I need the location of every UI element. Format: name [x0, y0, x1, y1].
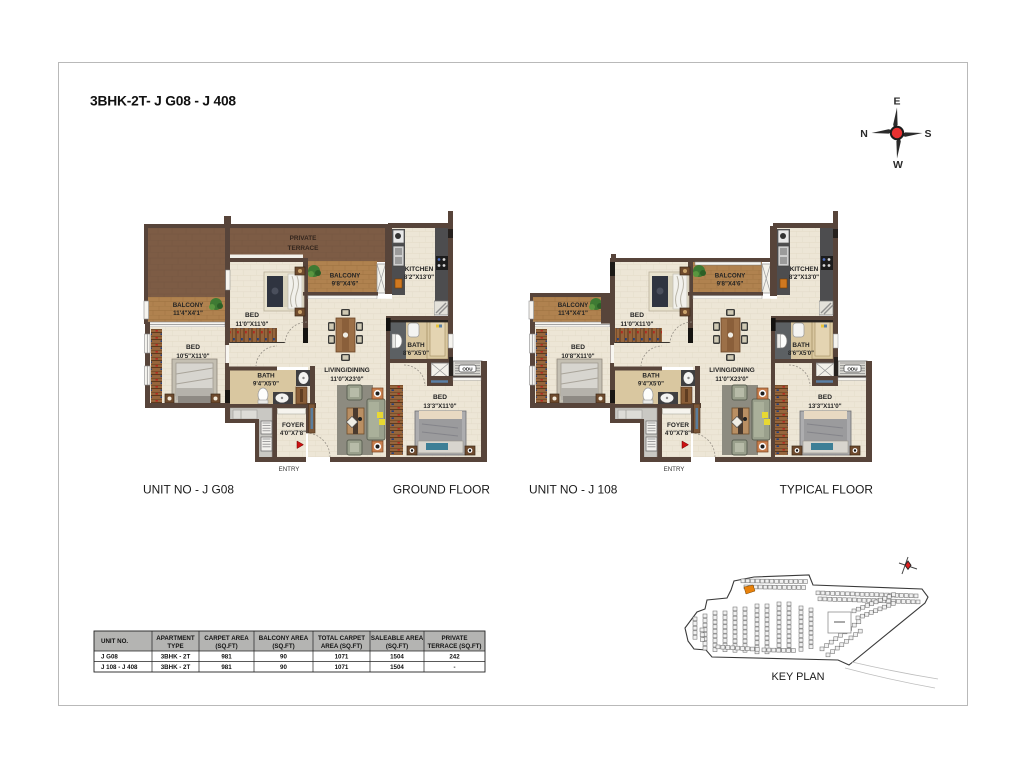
svg-text:(SQ.FT): (SQ.FT) — [386, 643, 408, 650]
svg-text:N: N — [860, 128, 868, 140]
svg-text:KEY PLAN: KEY PLAN — [771, 671, 824, 683]
svg-text:BALCONY: BALCONY — [173, 302, 204, 309]
svg-text:BALCONY: BALCONY — [330, 273, 361, 280]
svg-text:9'8"X4'6": 9'8"X4'6" — [332, 281, 359, 288]
svg-text:SALEABLE AREA: SALEABLE AREA — [371, 635, 424, 642]
svg-text:BED: BED — [245, 312, 259, 319]
svg-text:981: 981 — [221, 664, 232, 671]
svg-text:8'6"X5'0": 8'6"X5'0" — [788, 351, 814, 357]
svg-text:3BHK - 2T: 3BHK - 2T — [161, 664, 191, 671]
svg-text:11'4"X4'1": 11'4"X4'1" — [558, 310, 588, 317]
svg-text:LIVING/DINING: LIVING/DINING — [324, 367, 369, 374]
svg-text:BED: BED — [186, 344, 200, 351]
svg-text:4'0"X7'8": 4'0"X7'8" — [665, 431, 691, 437]
svg-text:(SQ.FT): (SQ.FT) — [272, 643, 294, 650]
svg-text:9'4"X5'0": 9'4"X5'0" — [253, 382, 279, 388]
svg-text:ODU: ODU — [462, 367, 473, 372]
svg-text:J G08: J G08 — [101, 654, 118, 661]
svg-text:1071: 1071 — [335, 654, 349, 661]
svg-text:TYPICAL FLOOR: TYPICAL FLOOR — [780, 483, 874, 497]
svg-text:BATH: BATH — [642, 373, 660, 380]
svg-text:-: - — [453, 664, 455, 671]
svg-text:BALCONY: BALCONY — [715, 273, 746, 280]
svg-text:1071: 1071 — [335, 664, 349, 671]
svg-text:FOYER: FOYER — [282, 422, 304, 429]
svg-text:KITCHEN: KITCHEN — [405, 266, 434, 273]
svg-text:11'0"X23'0": 11'0"X23'0" — [715, 376, 748, 383]
svg-text:TYPE: TYPE — [167, 643, 183, 650]
svg-text:3BHK - 2T: 3BHK - 2T — [161, 654, 191, 661]
svg-text:11'4"X4'1": 11'4"X4'1" — [173, 310, 203, 317]
svg-text:9'4"X5'0": 9'4"X5'0" — [638, 382, 664, 388]
svg-text:4'0"X7'8": 4'0"X7'8" — [280, 431, 306, 437]
svg-text:BALCONY: BALCONY — [558, 302, 589, 309]
svg-text:(SQ.FT): (SQ.FT) — [215, 643, 237, 650]
svg-text:11'0"X11'0": 11'0"X11'0" — [621, 321, 654, 328]
svg-text:BALCONY AREA: BALCONY AREA — [259, 635, 309, 642]
svg-text:UNIT NO - J G08: UNIT NO - J G08 — [143, 483, 234, 497]
svg-text:APARTMENT: APARTMENT — [156, 635, 195, 642]
svg-text:1504: 1504 — [390, 654, 404, 661]
svg-text:J 108 - J 408: J 108 - J 408 — [101, 664, 138, 671]
svg-text:TOTAL CARPET: TOTAL CARPET — [318, 635, 365, 642]
svg-text:ENTRY: ENTRY — [279, 466, 300, 473]
svg-text:BATH: BATH — [407, 342, 425, 349]
svg-text:13'3"X11'0": 13'3"X11'0" — [808, 403, 841, 410]
svg-text:9'8"X4'6": 9'8"X4'6" — [717, 281, 744, 288]
svg-text:ENTRY: ENTRY — [664, 466, 685, 473]
svg-text:BATH: BATH — [257, 373, 275, 380]
svg-text:AREA (SQ.FT): AREA (SQ.FT) — [321, 643, 362, 650]
svg-text:BED: BED — [433, 394, 447, 401]
svg-text:1504: 1504 — [390, 664, 404, 671]
svg-text:8'2"X13'0": 8'2"X13'0" — [404, 274, 434, 281]
svg-text:3BHK-2T- J G08 - J 408: 3BHK-2T- J G08 - J 408 — [90, 94, 236, 109]
svg-text:11'0"X11'0": 11'0"X11'0" — [236, 321, 269, 328]
svg-text:PRIVATE: PRIVATE — [442, 635, 468, 642]
svg-text:ODU: ODU — [847, 367, 858, 372]
svg-text:13'3"X11'0": 13'3"X11'0" — [423, 403, 456, 410]
svg-text:8'6"X5'0": 8'6"X5'0" — [403, 351, 429, 357]
svg-text:11'0"X23'0": 11'0"X23'0" — [330, 376, 363, 383]
svg-text:E: E — [893, 96, 900, 108]
svg-text:GROUND FLOOR: GROUND FLOOR — [393, 483, 491, 497]
svg-text:BED: BED — [630, 312, 644, 319]
svg-text:981: 981 — [221, 654, 232, 661]
svg-text:90: 90 — [280, 654, 287, 661]
svg-text:FOYER: FOYER — [667, 422, 689, 429]
svg-text:CARPET AREA: CARPET AREA — [204, 635, 249, 642]
svg-text:KITCHEN: KITCHEN — [790, 266, 819, 273]
svg-text:BATH: BATH — [792, 342, 810, 349]
svg-text:242: 242 — [449, 654, 460, 661]
svg-text:TERRACE (SQ.FT): TERRACE (SQ.FT) — [428, 643, 482, 650]
svg-text:90: 90 — [280, 664, 287, 671]
svg-text:UNIT NO - J 108: UNIT NO - J 108 — [529, 483, 618, 497]
svg-text:PRIVATE: PRIVATE — [290, 235, 317, 242]
svg-text:LIVING/DINING: LIVING/DINING — [709, 367, 754, 374]
svg-text:S: S — [924, 128, 931, 140]
svg-text:BED: BED — [571, 344, 585, 351]
svg-text:W: W — [893, 159, 903, 171]
svg-text:TERRACE: TERRACE — [288, 245, 320, 252]
svg-text:UNIT NO.: UNIT NO. — [101, 638, 128, 645]
svg-text:8'2"X13'0": 8'2"X13'0" — [789, 274, 819, 281]
svg-text:BED: BED — [818, 394, 832, 401]
